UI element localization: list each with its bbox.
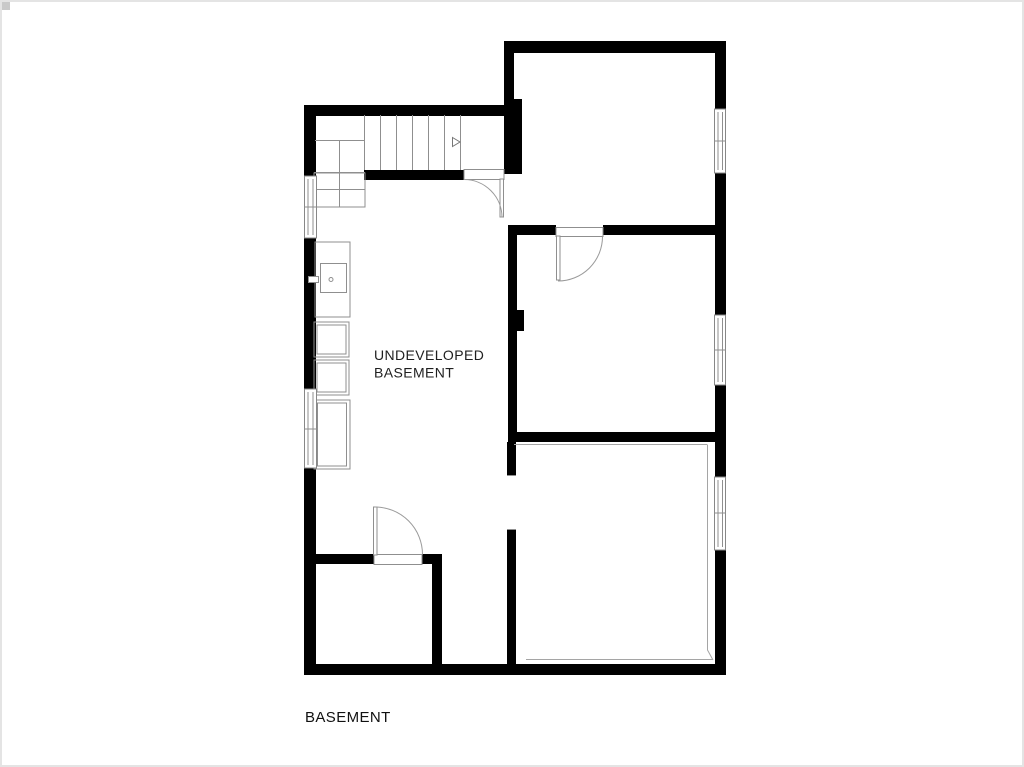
cabinet-1 (314, 322, 349, 357)
middle-horizontal-wall (508, 432, 718, 442)
middle-vertical-wall-lower-b (507, 530, 516, 665)
stair-hall-top-wall (304, 105, 507, 116)
small-room-top-wall-left (315, 554, 374, 564)
middle-vertical-wall-lower-a (507, 442, 516, 475)
door-small-room (374, 507, 423, 565)
small-room-right-wall (432, 554, 442, 665)
window-right-top (715, 109, 726, 173)
stair-direction-arrow-icon (453, 138, 461, 147)
middle-room-top-wall-left (508, 225, 556, 235)
top-exterior-wall (504, 41, 726, 53)
top-room-left-wall-lower (504, 99, 522, 174)
floorplan-image: UNDEVELOPED BASEMENT BASEMENT (0, 0, 1024, 767)
room-label-undeveloped-line1: UNDEVELOPED (374, 347, 484, 363)
walls (304, 41, 726, 675)
doorway-opening (507, 476, 516, 530)
stairs (314, 115, 461, 207)
window-right-bottom (715, 477, 726, 550)
stair-hall-bottom-wall (364, 170, 464, 180)
room-label-undeveloped-line2: BASEMENT (374, 365, 454, 381)
bottom-exterior-wall (304, 664, 726, 675)
wall-pilaster (508, 310, 524, 331)
door-middle-room (556, 228, 603, 282)
cabinet-3 (314, 400, 350, 469)
middle-room-top-wall-right (603, 225, 715, 235)
middle-vertical-wall-upper (508, 235, 517, 432)
window-left-lower (305, 389, 317, 468)
bottom-right-room-outline (514, 445, 713, 661)
door-stair-hall (464, 170, 504, 218)
floor-plan: UNDEVELOPED BASEMENT BASEMENT (2, 2, 1024, 767)
window-left-upper (305, 176, 317, 238)
furnace-icon (309, 242, 351, 317)
window-right-middle (715, 315, 726, 385)
cabinet-2 (314, 360, 349, 395)
plan-title: BASEMENT (305, 709, 391, 726)
